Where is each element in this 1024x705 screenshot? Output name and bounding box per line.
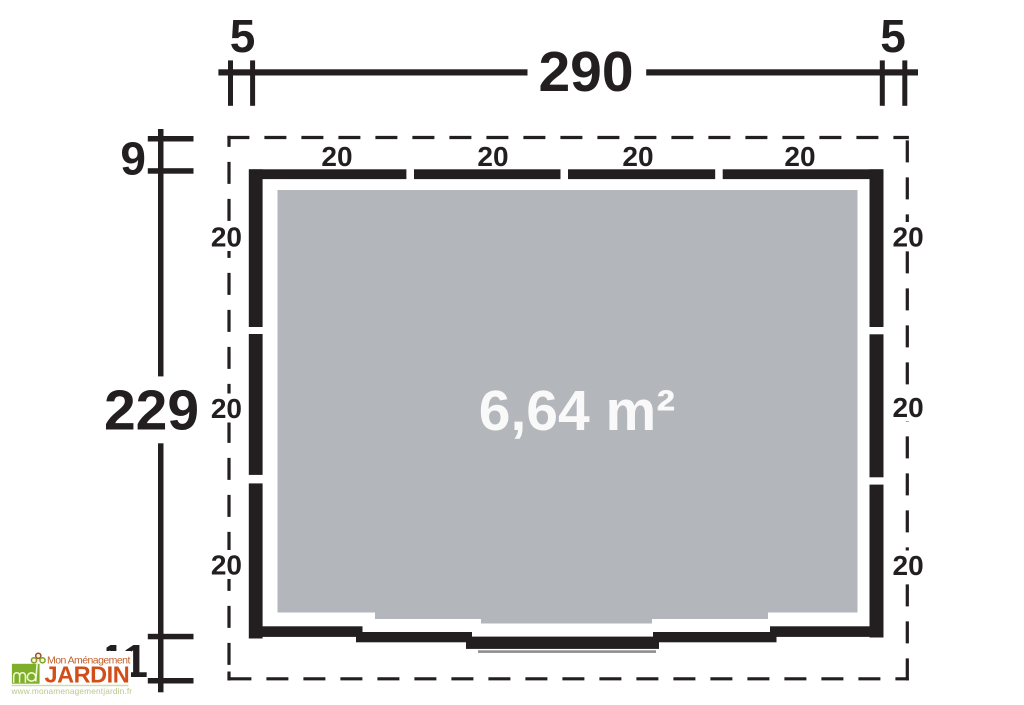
svg-text:20: 20	[211, 550, 242, 581]
svg-text:5: 5	[230, 10, 256, 62]
svg-text:6,64 m²: 6,64 m²	[479, 379, 675, 443]
svg-text:20: 20	[211, 393, 242, 424]
svg-text:20: 20	[477, 141, 508, 172]
svg-text:229: 229	[104, 379, 199, 443]
svg-text:20: 20	[321, 141, 352, 172]
svg-text:20: 20	[893, 392, 924, 423]
svg-text:5: 5	[880, 10, 906, 62]
svg-text:290: 290	[538, 40, 633, 104]
svg-text:20: 20	[784, 141, 815, 172]
svg-text:9: 9	[120, 133, 146, 185]
svg-text:JARDIN: JARDIN	[45, 662, 130, 688]
svg-text:20: 20	[622, 141, 653, 172]
svg-text:20: 20	[211, 222, 242, 253]
svg-text:20: 20	[893, 222, 924, 253]
svg-text:www.monamenagementjardin.fr: www.monamenagementjardin.fr	[11, 686, 133, 696]
svg-text:20: 20	[893, 550, 924, 581]
